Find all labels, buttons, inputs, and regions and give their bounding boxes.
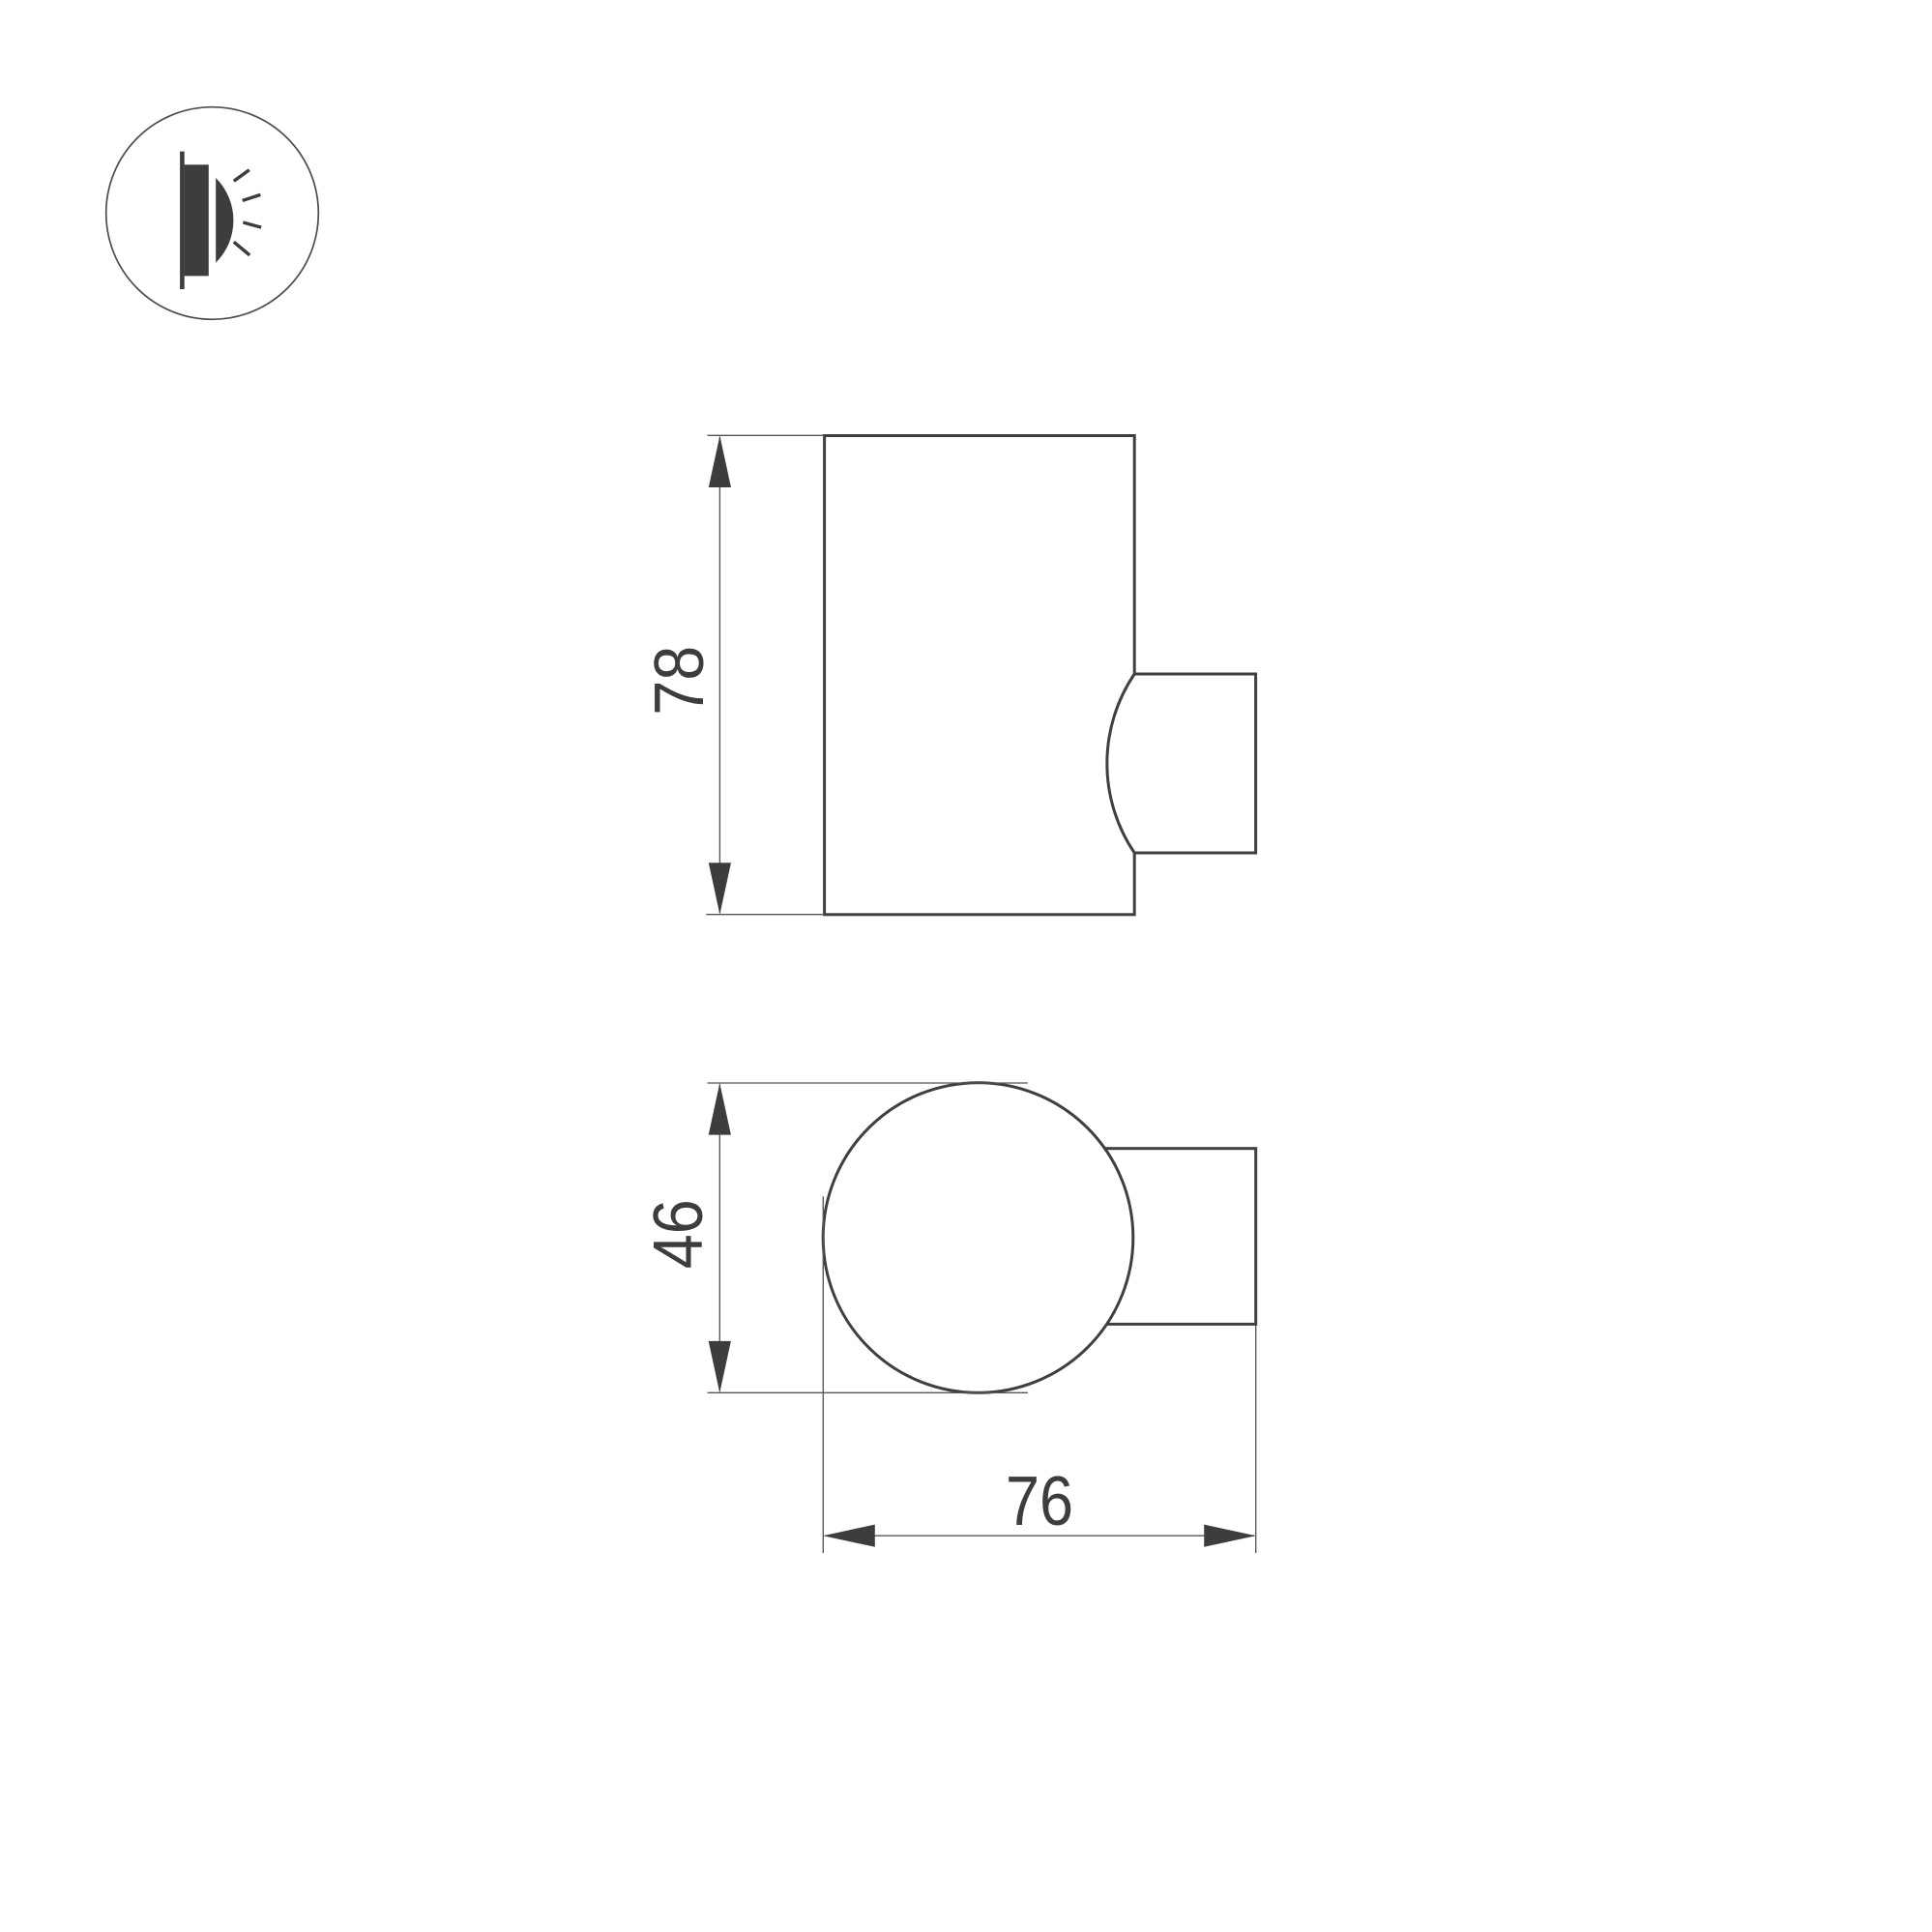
svg-text:78: 78 xyxy=(641,646,718,716)
svg-text:76: 76 xyxy=(1006,1463,1073,1540)
svg-text:46: 46 xyxy=(640,1199,717,1269)
